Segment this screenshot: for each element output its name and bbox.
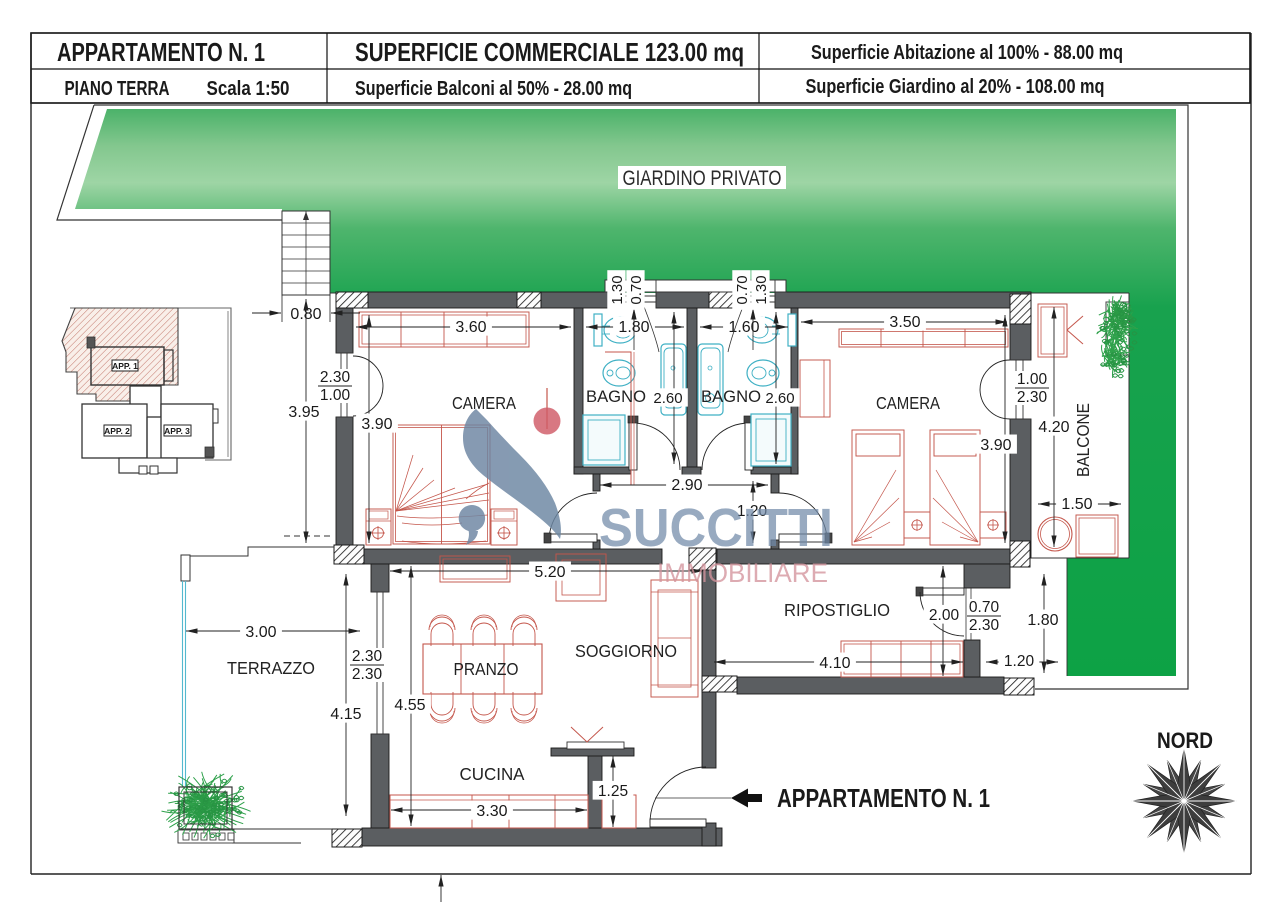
svg-text:1.30: 1.30 (753, 275, 770, 304)
svg-text:Superficie Balconi al 50% - 28: Superficie Balconi al 50% - 28.00 mq (355, 78, 632, 100)
svg-text:NORD: NORD (1157, 728, 1213, 753)
svg-text:CAMERA: CAMERA (876, 393, 940, 413)
svg-text:3.50: 3.50 (889, 314, 920, 331)
svg-text:TERRAZZO: TERRAZZO (227, 658, 315, 678)
svg-text:0.70: 0.70 (734, 275, 751, 304)
svg-text:2.30: 2.30 (969, 617, 1000, 634)
svg-text:1.30: 1.30 (609, 275, 626, 304)
svg-text:PRANZO: PRANZO (454, 659, 519, 679)
svg-text:2.90: 2.90 (671, 477, 702, 494)
svg-text:SUCCITTI: SUCCITTI (599, 498, 833, 558)
svg-text:3.95: 3.95 (288, 404, 319, 421)
svg-text:SOGGIORNO: SOGGIORNO (575, 641, 677, 661)
svg-text:3.90: 3.90 (361, 416, 392, 433)
svg-text:2.30: 2.30 (352, 666, 383, 683)
svg-text:2.60: 2.60 (765, 390, 794, 407)
svg-text:2.30: 2.30 (352, 648, 383, 665)
svg-text:2.30: 2.30 (320, 369, 351, 386)
svg-text:SUPERFICIE COMMERCIALE 123.00: SUPERFICIE COMMERCIALE 123.00 mq (355, 37, 744, 67)
svg-text:Scala 1:50: Scala 1:50 (207, 78, 290, 100)
svg-text:Superficie Abitazione al 100%: Superficie Abitazione al 100% - 88.00 mq (811, 42, 1123, 64)
svg-text:4.10: 4.10 (819, 655, 850, 672)
svg-text:APP. 2: APP. 2 (104, 426, 130, 436)
svg-text:RIPOSTIGLIO: RIPOSTIGLIO (784, 600, 890, 620)
svg-text:1.50: 1.50 (1061, 496, 1092, 513)
svg-text:3.30: 3.30 (476, 803, 507, 820)
svg-text:APP. 3: APP. 3 (164, 426, 190, 436)
svg-text:4.20: 4.20 (1038, 419, 1069, 436)
svg-text:CUCINA: CUCINA (460, 764, 525, 784)
svg-text:3.90: 3.90 (980, 437, 1011, 454)
svg-text:0.70: 0.70 (969, 599, 1000, 616)
svg-text:4.55: 4.55 (394, 697, 425, 714)
svg-text:GIARDINO PRIVATO: GIARDINO PRIVATO (623, 167, 782, 190)
svg-text:IMMOBILIARE: IMMOBILIARE (657, 558, 828, 588)
svg-text:BAGNO: BAGNO (701, 387, 761, 406)
svg-text:0.70: 0.70 (628, 275, 645, 304)
svg-text:PIANO TERRA: PIANO TERRA (65, 78, 170, 100)
svg-text:2.30: 2.30 (1017, 389, 1048, 406)
svg-text:1.20: 1.20 (1004, 653, 1035, 670)
svg-text:APPARTAMENTO N. 1: APPARTAMENTO N. 1 (777, 783, 990, 813)
svg-text:3.60: 3.60 (455, 319, 486, 336)
svg-text:1.25: 1.25 (598, 783, 628, 800)
svg-text:Superficie Giardino al 20% - 1: Superficie Giardino al 20% - 108.00 mq (806, 76, 1105, 98)
svg-text:1.00: 1.00 (1017, 371, 1048, 388)
svg-text:1.00: 1.00 (320, 387, 351, 404)
svg-text:4.15: 4.15 (330, 706, 361, 723)
svg-text:1.80: 1.80 (1027, 612, 1058, 629)
svg-text:2.60: 2.60 (653, 390, 682, 407)
svg-text:BALCONE: BALCONE (1073, 403, 1093, 477)
svg-text:2.00: 2.00 (929, 607, 960, 624)
svg-text:BAGNO: BAGNO (586, 387, 646, 406)
svg-text:5.20: 5.20 (534, 564, 565, 581)
svg-text:3.00: 3.00 (245, 624, 276, 641)
svg-text:APPARTAMENTO N. 1: APPARTAMENTO N. 1 (57, 37, 265, 67)
svg-text:CAMERA: CAMERA (452, 393, 516, 413)
svg-text:APP. 1: APP. 1 (112, 361, 138, 371)
